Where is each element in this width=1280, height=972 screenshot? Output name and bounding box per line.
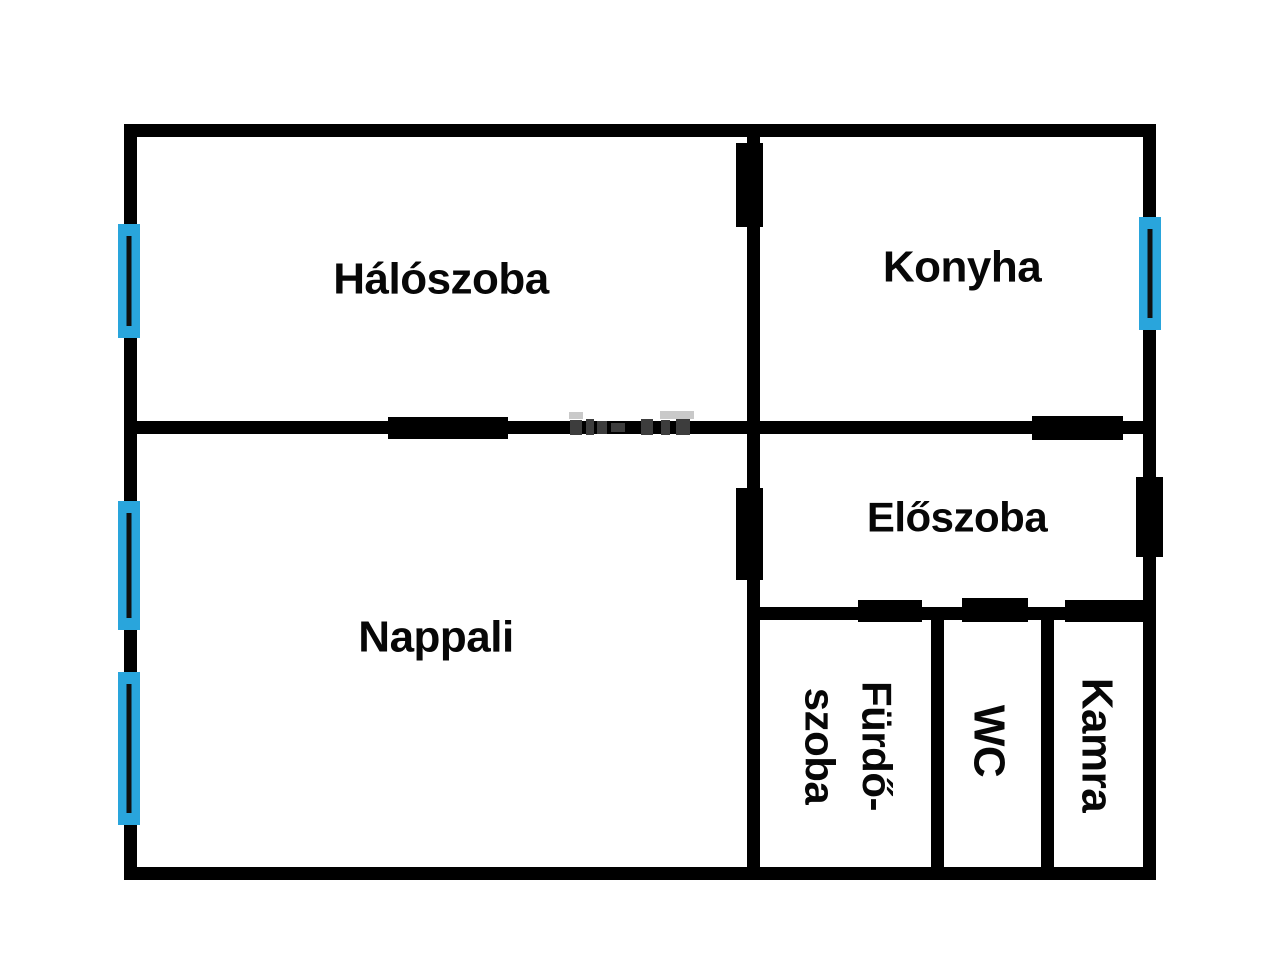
- watermark-fragment: [570, 420, 582, 435]
- door-haloszoba-nappali: [388, 417, 508, 439]
- watermark-fragment: [586, 419, 594, 435]
- room-label-eloszoba: Előszoba: [867, 490, 1047, 547]
- door-furdoszoba: [858, 600, 922, 622]
- window-pane-haloszoba: [127, 236, 132, 326]
- watermark-fragment: [569, 412, 583, 419]
- room-label-wc: WC: [959, 705, 1018, 777]
- wall-middle-horizontal: [124, 421, 1156, 434]
- wall-bathroom-wc: [931, 607, 944, 880]
- door-entrance: [1136, 477, 1163, 557]
- window-pane-nappali-lower: [127, 684, 132, 813]
- room-label-konyha: Konyha: [883, 237, 1041, 296]
- floorplan-canvas: Hálószoba Konyha Nappali Előszoba Fürdő-…: [0, 0, 1280, 972]
- window-pane-nappali-upper: [127, 513, 132, 618]
- watermark-fragment: [641, 419, 653, 435]
- door-kamra: [1065, 600, 1143, 622]
- window-pane-konyha: [1148, 229, 1153, 318]
- room-label-nappali: Nappali: [358, 607, 513, 666]
- watermark-fragment: [597, 421, 607, 434]
- room-label-kamra: Kamra: [1067, 678, 1126, 812]
- room-label-furdoszoba: Fürdő- szoba: [791, 681, 904, 811]
- wall-outer-bottom: [124, 867, 1156, 880]
- floorplan-svg: [0, 0, 1280, 972]
- wall-wc-pantry: [1041, 607, 1054, 880]
- door-wc: [962, 598, 1028, 622]
- door-nappali-eloszoba: [736, 488, 763, 580]
- watermark-fragment: [611, 423, 625, 432]
- watermark-fragment: [676, 419, 690, 435]
- wall-outer-top: [124, 124, 1156, 137]
- watermark-fragment: [661, 420, 670, 435]
- door-konyha-eloszoba: [1032, 416, 1123, 440]
- watermark-fragment: [660, 411, 694, 419]
- door-haloszoba-konyha: [736, 143, 763, 227]
- room-label-haloszoba: Hálószoba: [333, 249, 549, 308]
